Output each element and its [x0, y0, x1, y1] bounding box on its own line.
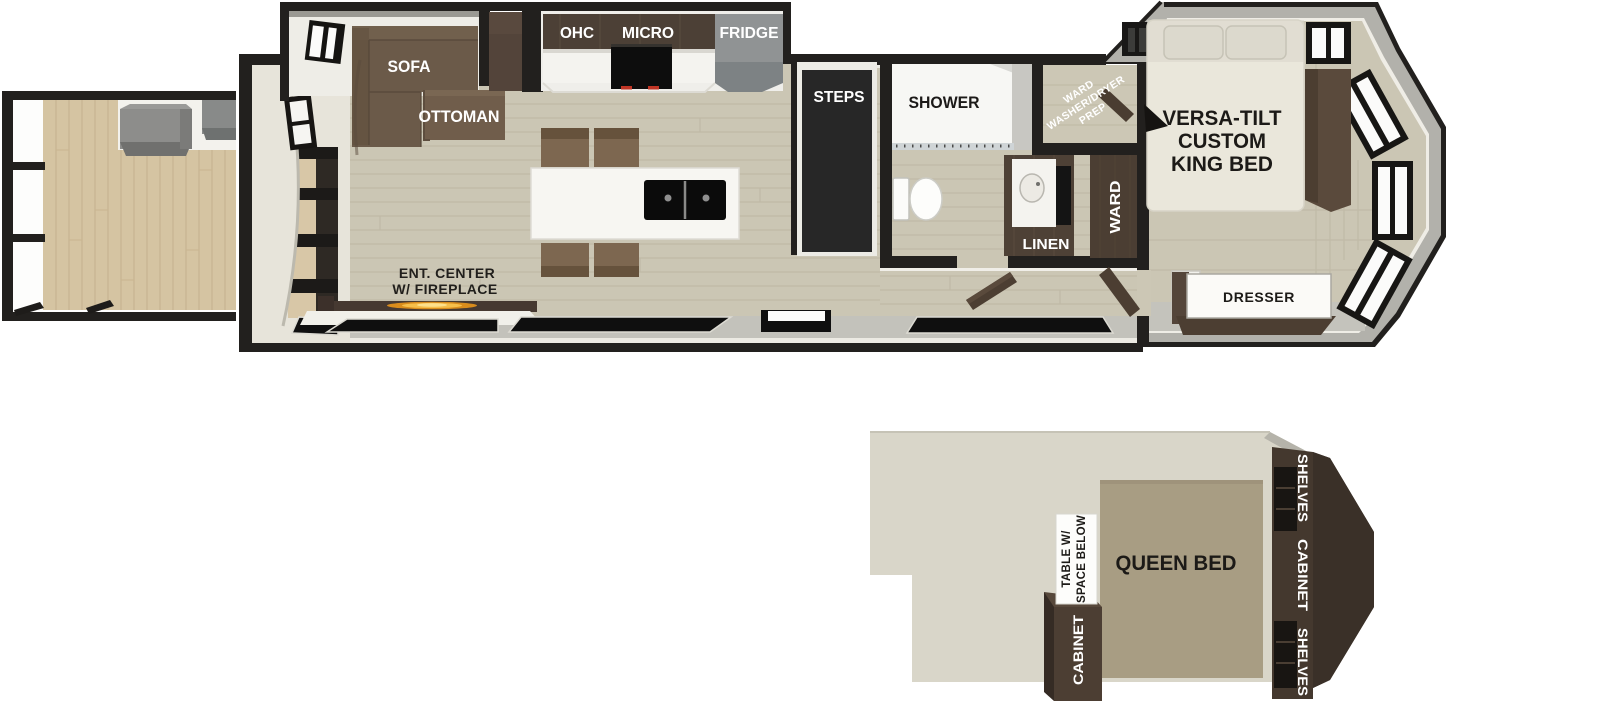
svg-text:ENT. CENTER: ENT. CENTER: [399, 265, 495, 281]
svg-text:SPACE BELOW: SPACE BELOW: [1076, 515, 1088, 603]
svg-text:STEPS: STEPS: [814, 89, 865, 106]
svg-text:KING BED: KING BED: [1171, 153, 1273, 176]
svg-text:SOFA: SOFA: [388, 57, 431, 76]
svg-text:CABINET: CABINET: [1295, 539, 1311, 612]
svg-text:OHC: OHC: [560, 25, 594, 42]
svg-text:MICRO: MICRO: [622, 25, 674, 42]
svg-text:WARD: WARD: [1107, 180, 1124, 233]
svg-text:FRIDGE: FRIDGE: [720, 25, 779, 42]
svg-text:DRESSER: DRESSER: [1223, 289, 1295, 305]
svg-text:VERSA-TILT: VERSA-TILT: [1163, 107, 1282, 130]
svg-text:CUSTOM: CUSTOM: [1178, 130, 1266, 153]
svg-text:LINEN: LINEN: [1023, 236, 1070, 253]
svg-text:SHELVES: SHELVES: [1295, 628, 1311, 696]
svg-text:W/ FIREPLACE: W/ FIREPLACE: [392, 281, 497, 297]
svg-text:SHELVES: SHELVES: [1295, 454, 1311, 522]
svg-text:OTTOMAN: OTTOMAN: [419, 107, 500, 126]
svg-text:QUEEN BED: QUEEN BED: [1116, 552, 1237, 575]
svg-text:SHOWER: SHOWER: [909, 93, 980, 112]
svg-text:CABINET: CABINET: [1070, 615, 1086, 685]
svg-text:TABLE W/: TABLE W/: [1061, 530, 1073, 588]
